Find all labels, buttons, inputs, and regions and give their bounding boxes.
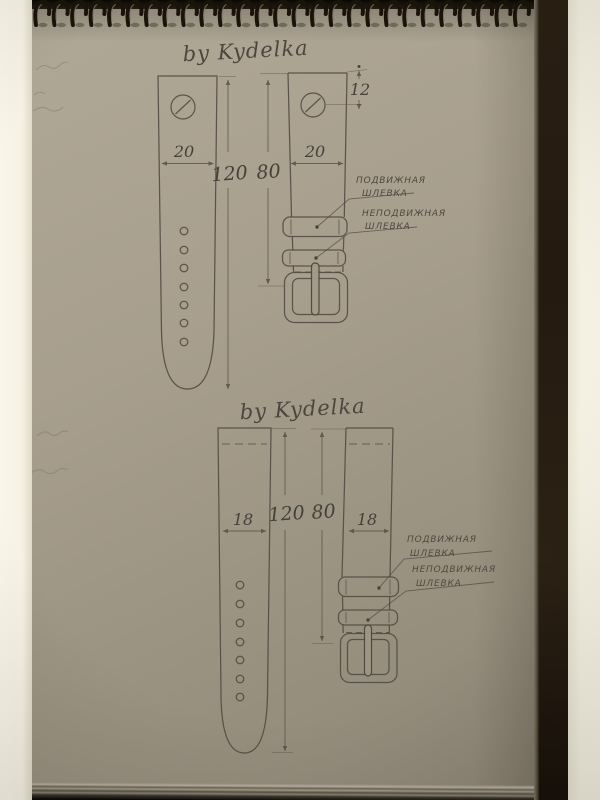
- d1-fixed-label-1: НЕПОДВИЖНАЯ: [362, 209, 446, 219]
- d1-buckle-length: 80: [256, 160, 282, 184]
- drawing-1: by Kydelka: [158, 36, 446, 389]
- d1-annotations: ПОДВИЖНАЯ ШЛЕВКА НЕПОДВИЖНАЯ ШЛЕВКА: [314, 176, 446, 260]
- strap-drawing: by Kydelka: [0, 0, 600, 800]
- sketchbook-photo: by Kydelka: [0, 0, 600, 800]
- d2-annotations: ПОДВИЖНАЯ ШЛЕВКА НЕПОДВИЖНАЯ ШЛЕВКА: [366, 535, 496, 622]
- d2-buckle-prong: [365, 625, 372, 676]
- d1-movable-label-1: ПОДВИЖНАЯ: [356, 176, 426, 186]
- drawing-1-title: by Kydelka: [182, 36, 309, 67]
- drawing-2: by Kydelka: [218, 394, 496, 753]
- d1-holes: [180, 227, 188, 346]
- d1-width-left: 20: [173, 142, 194, 161]
- d2-fixed-label-1: НЕПОДВИЖНАЯ: [412, 565, 496, 575]
- d1-fixed-label-2: ШЛЕВКА: [365, 222, 411, 232]
- d2-total-length: 120: [268, 502, 306, 526]
- d2-tail-strap: [218, 428, 271, 753]
- d1-movable-keeper: [283, 217, 347, 237]
- d2-buckle-strap: [339, 428, 399, 683]
- d2-width-left: 18: [233, 510, 253, 529]
- drawing-2-title: by Kydelka: [239, 394, 366, 425]
- d1-bar-offset: 12: [350, 80, 370, 99]
- d2-buckle-length: 80: [311, 500, 337, 524]
- d1-buckle-strap: [283, 73, 363, 323]
- d2-holes: [236, 581, 244, 701]
- d2-width-right: 18: [357, 510, 377, 529]
- d2-movable-keeper: [339, 577, 399, 597]
- d2-movable-label-1: ПОДВИЖНАЯ: [407, 535, 477, 545]
- d1-width-right: 20: [304, 142, 325, 161]
- d1-total-length: 120: [211, 162, 249, 186]
- d2-dimensions: 18 18 120 80: [223, 429, 389, 753]
- left-photo-strip: [0, 0, 32, 800]
- d1-tail-strap: [158, 76, 217, 389]
- d1-buckle-prong: [312, 263, 320, 315]
